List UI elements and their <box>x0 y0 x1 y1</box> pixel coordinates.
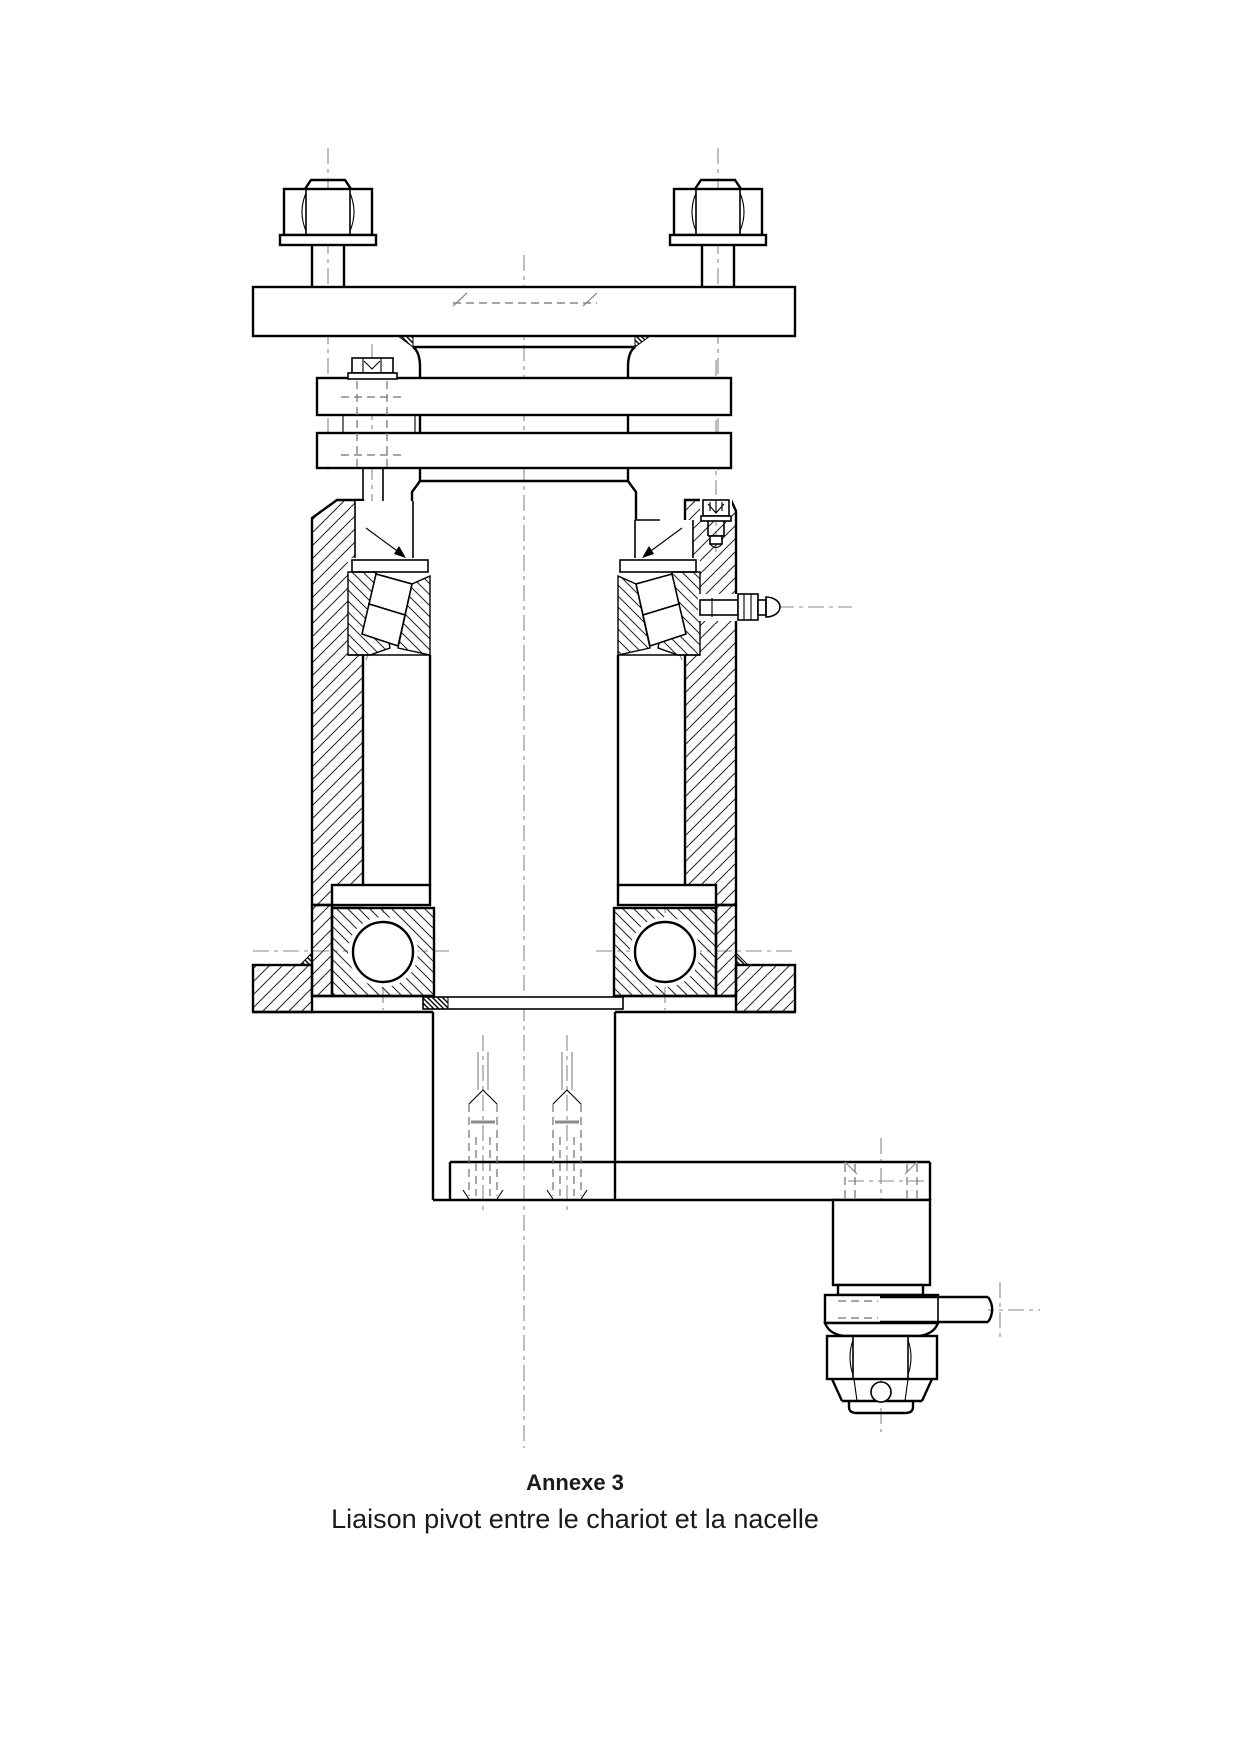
caption-subtitle: Liaison pivot entre le chariot et la nac… <box>50 1502 1100 1536</box>
top-plate <box>253 287 795 336</box>
ball-bearing-right <box>614 908 716 996</box>
tapered-roller-bearing-right <box>618 558 700 655</box>
caption-title: Annexe 3 <box>50 1468 1100 1498</box>
caption: Annexe 3 Liaison pivot entre le chariot … <box>50 1468 1100 1536</box>
tapered-roller-bearing-left <box>348 558 430 655</box>
handle-bolt-assembly <box>825 1164 992 1413</box>
grease-fitting <box>698 594 780 621</box>
retaining-plate <box>423 997 623 1009</box>
preload-screw-left <box>355 501 413 562</box>
drawing-page: Annexe 3 Liaison pivot entre le chariot … <box>0 0 1240 1754</box>
ball-bearing-left <box>332 908 434 996</box>
